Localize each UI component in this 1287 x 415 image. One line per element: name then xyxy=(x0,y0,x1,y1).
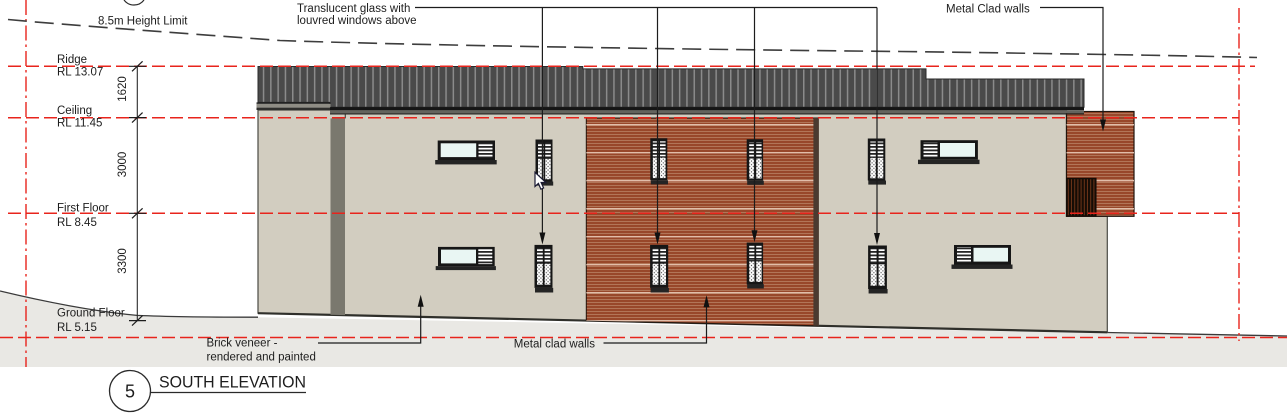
svg-text:louvred windows above: louvred windows above xyxy=(297,15,417,27)
svg-text:Ridge: Ridge xyxy=(57,54,87,66)
svg-text:5: 5 xyxy=(125,382,135,402)
svg-text:First Floor: First Floor xyxy=(57,202,109,214)
svg-text:1620: 1620 xyxy=(117,76,129,102)
svg-text:RL 8.45: RL 8.45 xyxy=(57,217,97,229)
svg-text:SOUTH ELEVATION: SOUTH ELEVATION xyxy=(159,374,306,392)
svg-text:Ground Floor: Ground Floor xyxy=(57,308,125,320)
svg-text:rendered and painted: rendered and painted xyxy=(207,352,316,364)
svg-text:Metal Clad walls: Metal Clad walls xyxy=(946,3,1030,15)
svg-text:Translucent glass with: Translucent glass with xyxy=(297,3,410,15)
svg-text:RL 5.15: RL 5.15 xyxy=(57,322,97,334)
svg-text:RL 13.07: RL 13.07 xyxy=(57,67,103,79)
svg-text:Brick veneer -: Brick veneer - xyxy=(207,338,278,350)
svg-text:3300: 3300 xyxy=(117,248,129,274)
svg-text:RL 11.45: RL 11.45 xyxy=(57,118,102,130)
svg-text:8.5m Height Limit: 8.5m Height Limit xyxy=(98,16,188,28)
svg-text:Ceiling: Ceiling xyxy=(57,105,92,117)
svg-text:3000: 3000 xyxy=(117,152,129,178)
svg-text:Metal clad walls: Metal clad walls xyxy=(514,339,595,351)
